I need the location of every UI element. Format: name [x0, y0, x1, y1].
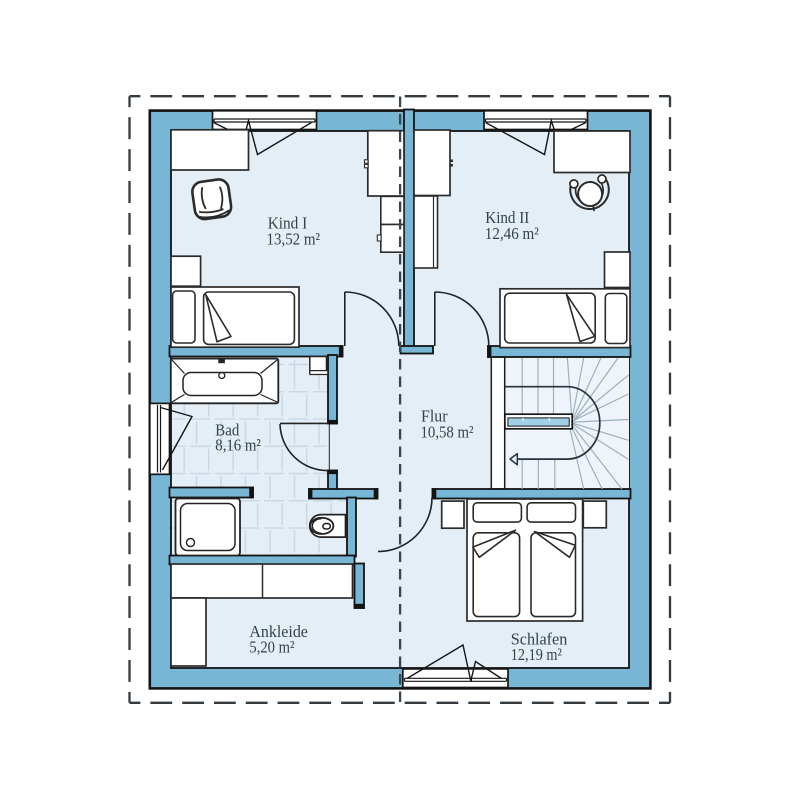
svg-text:13,52 m²: 13,52 m² — [267, 230, 321, 249]
svg-text:5,20 m²: 5,20 m² — [249, 637, 294, 656]
svg-text:12,46 m²: 12,46 m² — [485, 224, 539, 243]
svg-text:12,19 m²: 12,19 m² — [511, 645, 562, 664]
svg-text:8,16 m²: 8,16 m² — [215, 436, 261, 455]
svg-text:10,58 m²: 10,58 m² — [421, 422, 474, 441]
